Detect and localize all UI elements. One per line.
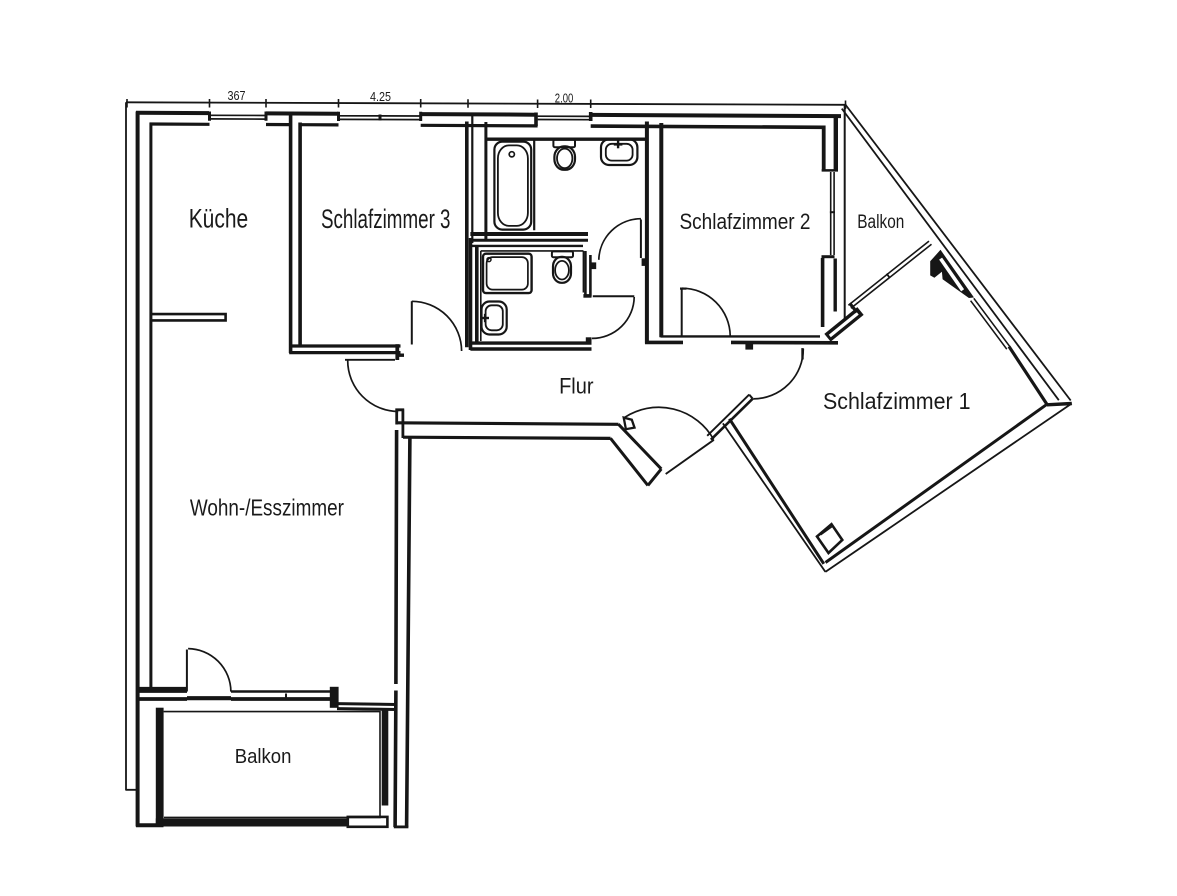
svg-text:Schlafzimmer 2: Schlafzimmer 2	[680, 209, 811, 234]
svg-text:Balkon: Balkon	[235, 746, 292, 768]
svg-text:Schlafzimmer 1: Schlafzimmer 1	[823, 388, 971, 414]
svg-text:Wohn-/Esszimmer: Wohn-/Esszimmer	[190, 494, 344, 520]
svg-text:Flur: Flur	[559, 374, 594, 399]
svg-text:Küche: Küche	[189, 204, 249, 234]
svg-text:2.00: 2.00	[555, 91, 574, 105]
svg-text:Balkon: Balkon	[857, 212, 904, 233]
svg-text:4.25: 4.25	[370, 90, 391, 104]
svg-text:Schlafzimmer 3: Schlafzimmer 3	[321, 204, 451, 234]
svg-text:367: 367	[228, 89, 246, 103]
